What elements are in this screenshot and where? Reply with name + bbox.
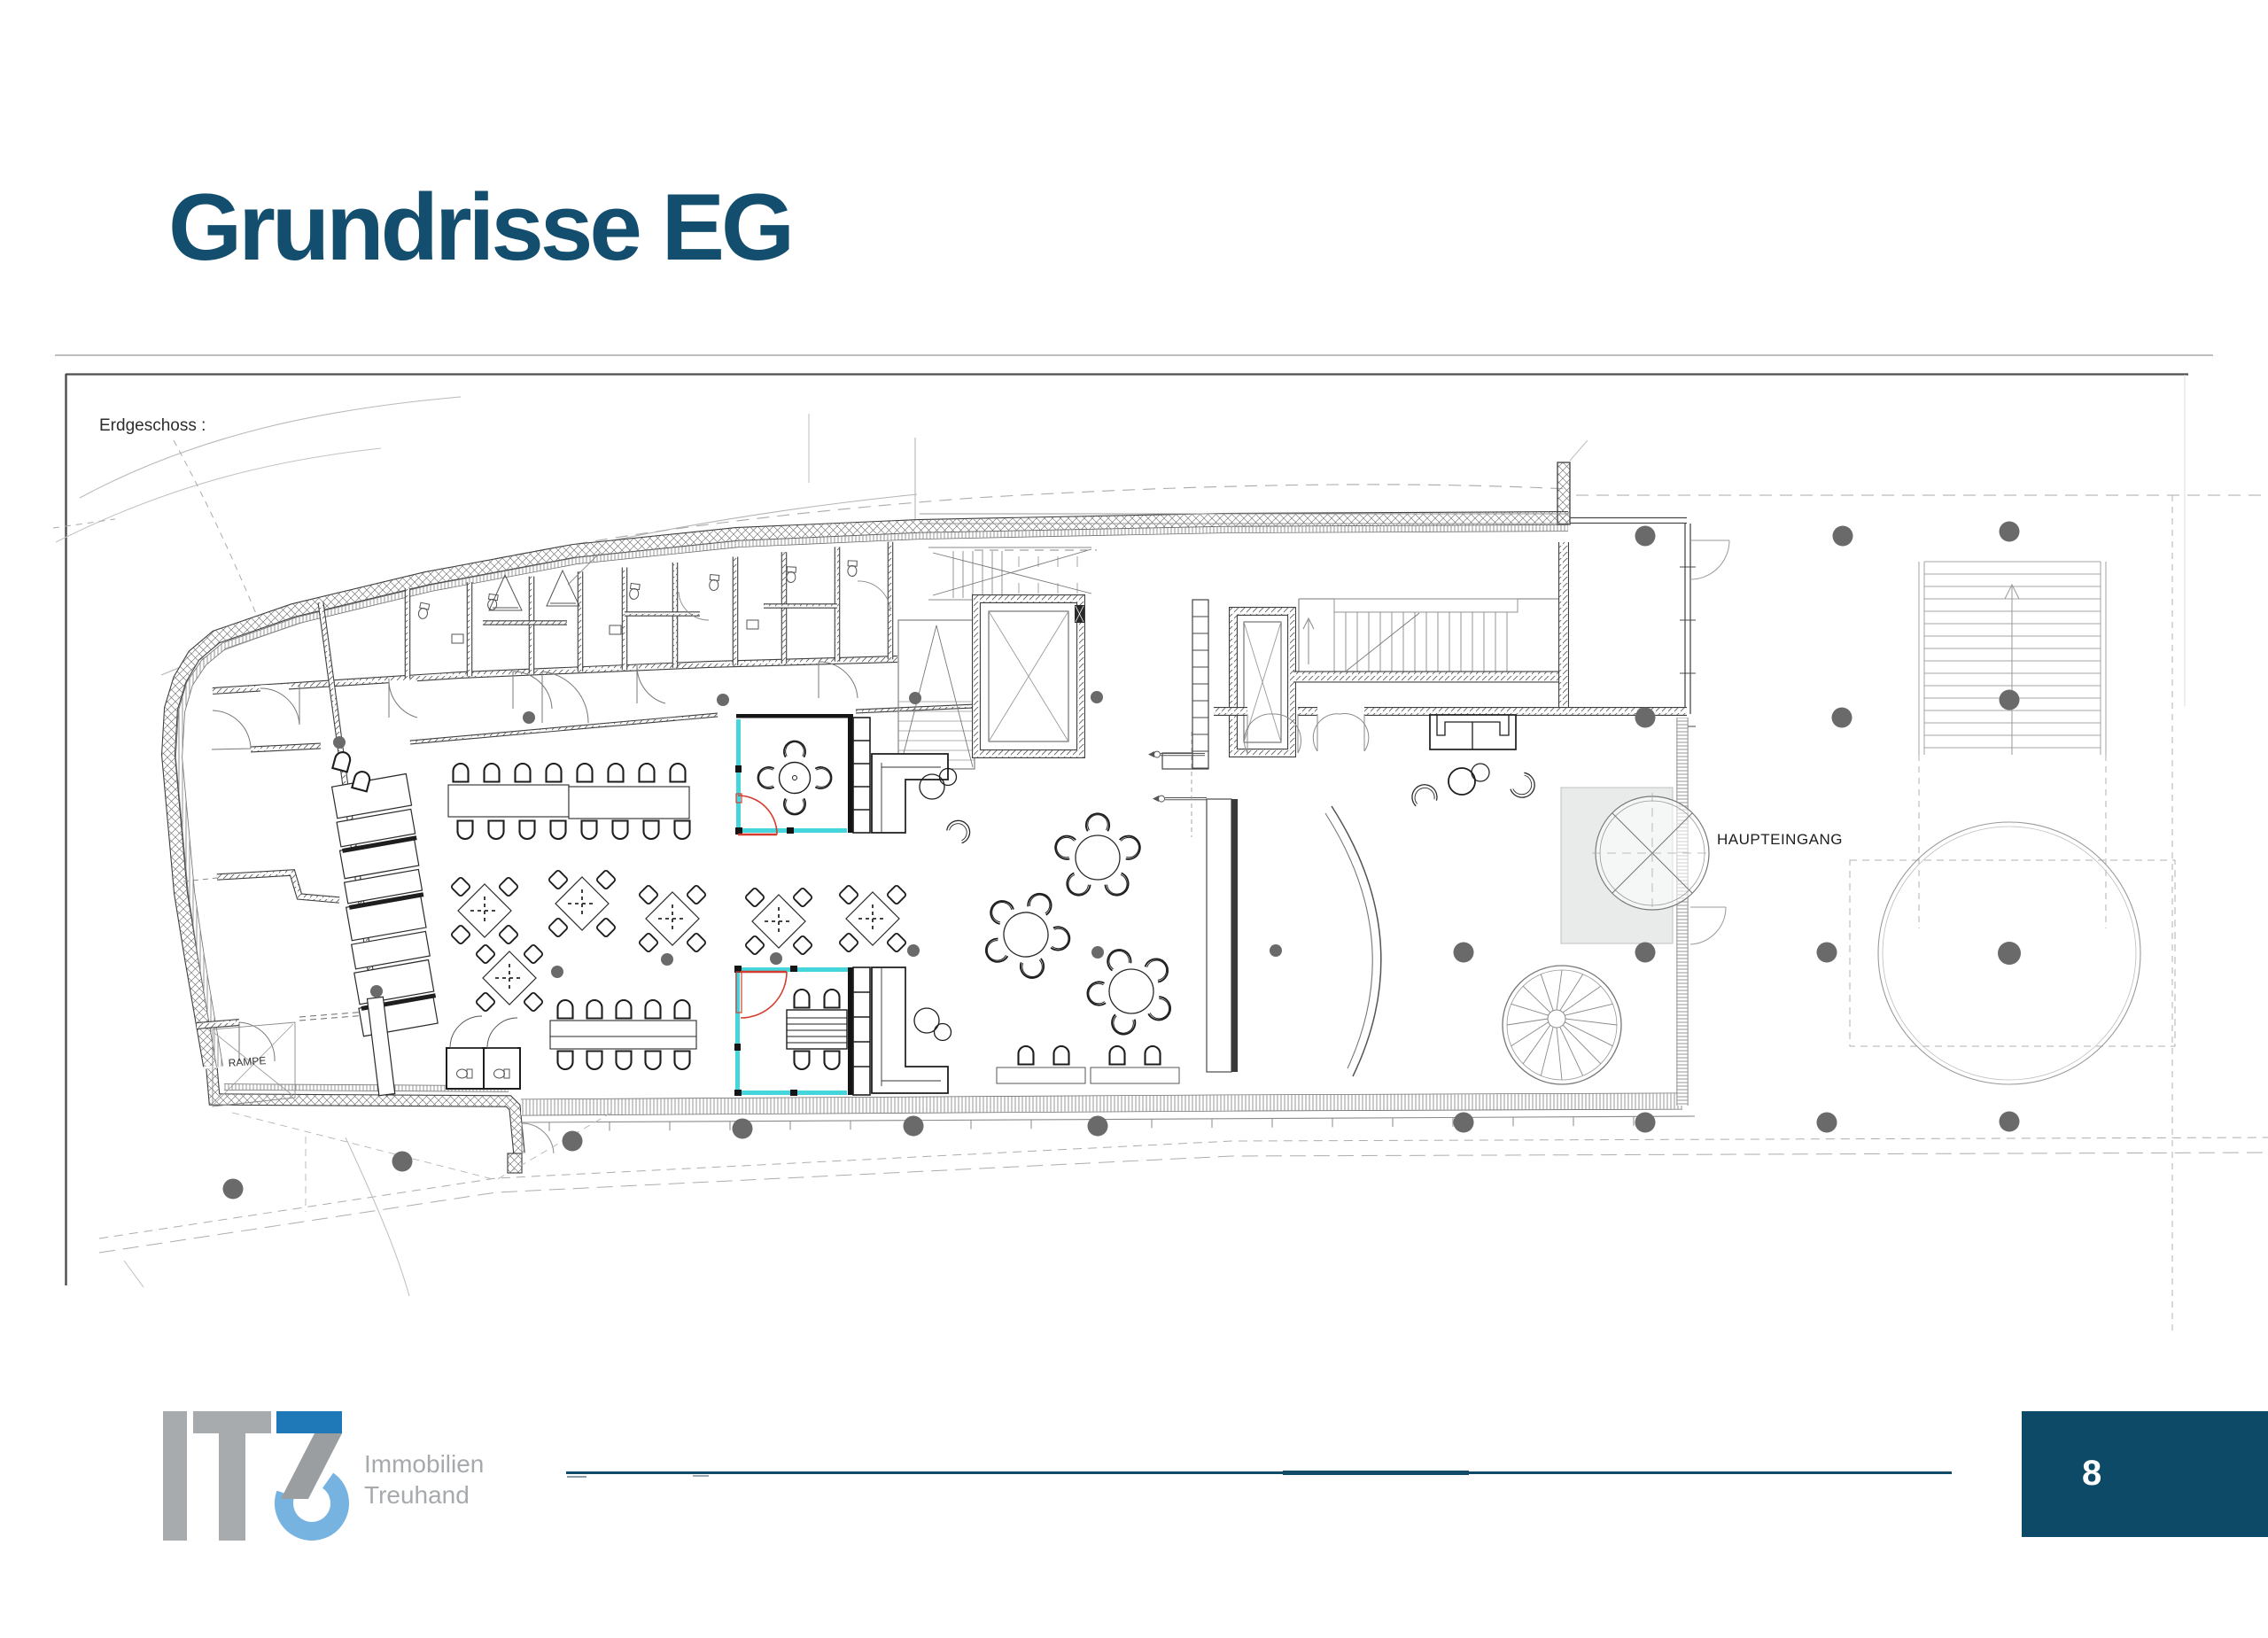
svg-text:Immobilien: Immobilien [364,1450,484,1478]
svg-text:HAUPTEINGANG: HAUPTEINGANG [1717,831,1843,848]
svg-text:Treuhand: Treuhand [364,1481,470,1509]
